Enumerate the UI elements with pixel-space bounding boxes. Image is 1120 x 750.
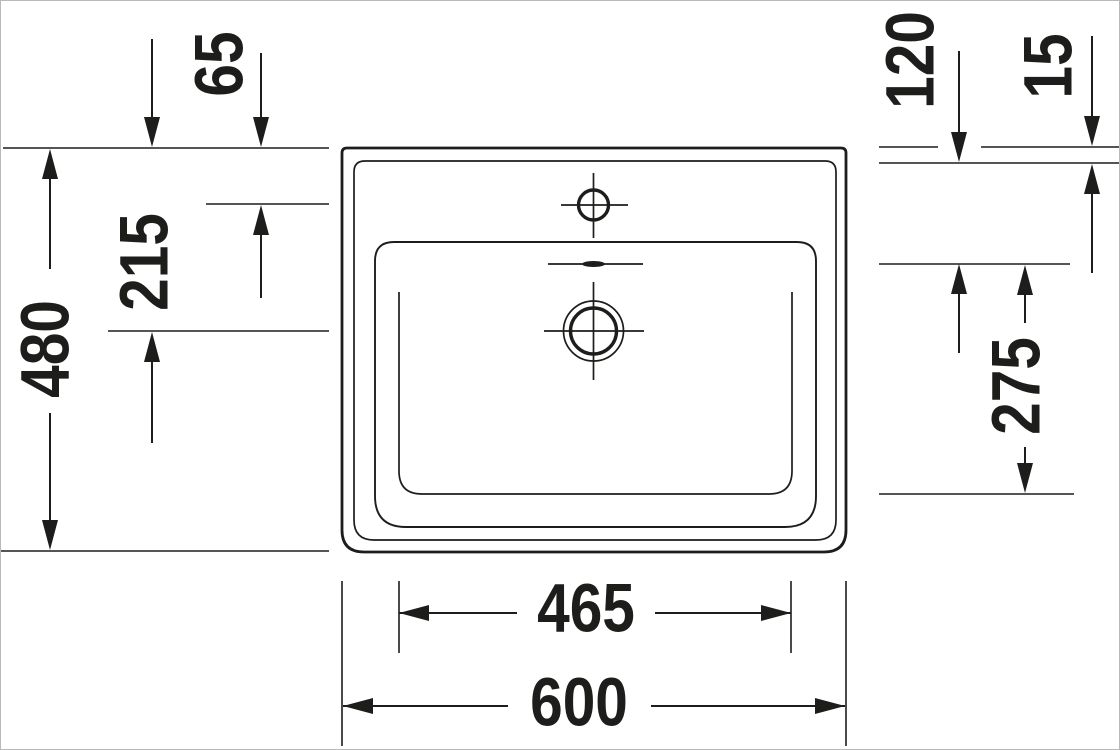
dim-bowl-inner-width: 465 (399, 569, 791, 647)
drawing-canvas: 480 215 65 120 15 275 (0, 0, 1120, 750)
dim-15-arrow-down (1084, 116, 1100, 146)
dim-600-arrow-right (815, 698, 845, 714)
basin-floor-outline (399, 292, 792, 494)
dim-tap-hole-from-back: 65 (180, 31, 269, 298)
dim-600-arrow-left (343, 698, 373, 714)
dim-65-label: 65 (180, 31, 258, 96)
dim-overall-depth: 480 (6, 149, 84, 550)
dim-120-label: 120 (871, 11, 949, 109)
dim-275-arrow-down (1017, 463, 1033, 493)
tap-hole (561, 173, 628, 238)
dim-65-arrow-up (253, 205, 269, 235)
dim-480-arrow-down (42, 520, 58, 550)
dim-drain-from-back: 215 (105, 39, 183, 443)
dim-465-arrow-left (399, 605, 429, 621)
drain-outlet (544, 282, 644, 380)
dim-rim-thickness: 15 (1009, 33, 1100, 273)
washbasin-technical-drawing: 480 215 65 120 15 275 (1, 1, 1120, 750)
dim-65-arrow-down (253, 117, 269, 147)
dim-15-arrow-up (1084, 164, 1100, 194)
basin-rim-outline (354, 161, 836, 540)
dim-275-arrow-up (1017, 265, 1033, 295)
overflow-slot (548, 261, 643, 267)
dim-600-label: 600 (530, 663, 628, 741)
dim-215-arrow-down (144, 117, 160, 147)
dim-480-arrow-up (42, 149, 58, 179)
dim-480-label: 480 (6, 300, 84, 398)
dim-15-label: 15 (1009, 33, 1087, 98)
dim-275-label: 275 (977, 337, 1055, 435)
overflow-slot-mark (582, 261, 605, 267)
dim-overall-width: 600 (343, 663, 845, 741)
dim-215-arrow-up (144, 332, 160, 362)
basin-bowl-outline (375, 242, 816, 527)
dim-465-label: 465 (537, 569, 635, 647)
dim-215-label: 215 (105, 213, 183, 311)
dim-120-arrow-up (951, 264, 967, 294)
dim-overflow-drop: 120 (871, 11, 967, 353)
dim-465-arrow-right (761, 605, 791, 621)
dim-120-arrow-down (951, 132, 967, 162)
dim-bowl-inner-depth: 275 (977, 265, 1055, 493)
